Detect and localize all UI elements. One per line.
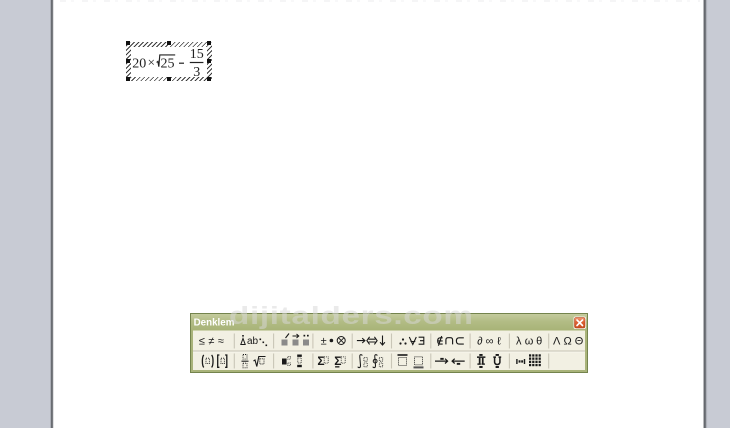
svg-text:15: 15 xyxy=(190,47,204,62)
svg-text:25: 25 xyxy=(161,56,175,71)
svg-text:Θ: Θ xyxy=(575,335,584,347)
svg-text:ab: ab xyxy=(247,336,259,347)
svg-text:≤≠≈: ≤≠≈ xyxy=(199,335,228,347)
svg-text:×: × xyxy=(148,55,155,70)
svg-text:∞: ∞ xyxy=(486,335,494,347)
svg-text:ω: ω xyxy=(525,335,534,347)
svg-text:λ: λ xyxy=(516,335,522,347)
svg-text:Σ: Σ xyxy=(334,354,341,368)
svg-text:ℓ: ℓ xyxy=(497,335,501,347)
svg-text:3: 3 xyxy=(193,65,200,80)
svg-text:20: 20 xyxy=(132,56,146,71)
svg-text:∂: ∂ xyxy=(477,335,483,347)
svg-text:Ω: Ω xyxy=(563,335,571,347)
svg-text:Λ: Λ xyxy=(553,335,561,347)
svg-text:±: ± xyxy=(321,335,327,347)
svg-text:θ: θ xyxy=(536,335,542,347)
svg-text:Σ: Σ xyxy=(317,354,324,368)
